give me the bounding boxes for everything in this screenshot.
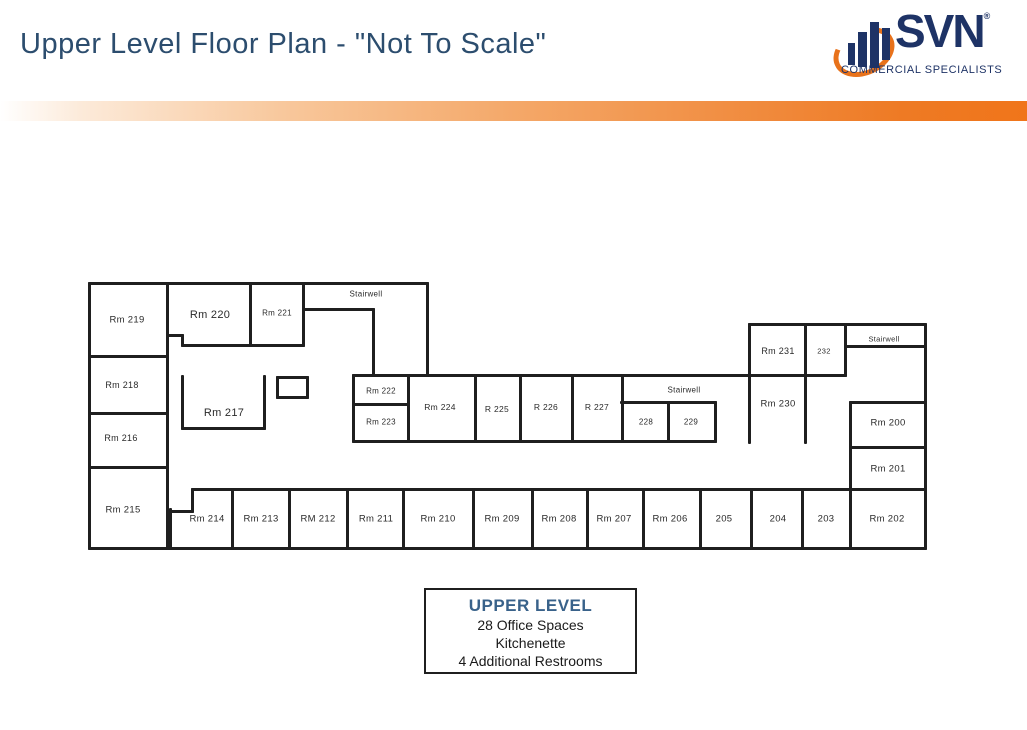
wall (402, 488, 405, 550)
room-label: Rm 231 (761, 346, 794, 356)
wall (531, 488, 534, 550)
room-label: RM 212 (300, 514, 335, 525)
wall (302, 308, 375, 311)
room-label: 205 (716, 514, 733, 525)
wall (181, 334, 184, 347)
room-label: 229 (684, 418, 698, 427)
slide: Upper Level Floor Plan - "Not To Scale" … (0, 0, 1027, 730)
wall (352, 403, 410, 406)
room-label: Rm 202 (869, 514, 904, 525)
wall (288, 488, 291, 550)
wall (474, 374, 477, 443)
room-label: Rm 207 (596, 514, 631, 525)
wall (181, 344, 305, 347)
wall (714, 401, 717, 443)
room-label: Rm 222 (366, 387, 396, 396)
wall (276, 376, 309, 379)
room-label: Rm 221 (262, 309, 292, 318)
room-label: Rm 219 (109, 315, 144, 326)
wall (169, 508, 172, 550)
room-label: 203 (818, 514, 835, 525)
wall (88, 282, 91, 550)
wall (352, 374, 355, 443)
room-label: Rm 214 (189, 514, 224, 525)
room-label: 204 (770, 514, 787, 525)
wall (191, 488, 927, 491)
room-label: Rm 210 (420, 514, 455, 525)
room-label: 228 (639, 418, 653, 427)
wall (191, 488, 194, 513)
wall (88, 412, 169, 415)
room-label: R 226 (534, 402, 558, 412)
wall (642, 488, 645, 550)
wall (306, 376, 309, 399)
wall (88, 466, 169, 469)
room-label: Rm 215 (105, 505, 140, 516)
wall (801, 488, 804, 550)
room-label: Stairwell (668, 386, 701, 395)
wall (748, 323, 751, 444)
wall (844, 323, 847, 377)
wall (472, 488, 475, 550)
wall (804, 323, 807, 444)
wall (407, 374, 410, 443)
room-label: Rm 230 (760, 399, 795, 410)
room-label: Rm 206 (652, 514, 687, 525)
room-label: Stairwell (868, 335, 899, 344)
wall (571, 374, 574, 443)
room-label: Rm 218 (105, 380, 138, 390)
wall (302, 282, 305, 347)
wall (748, 323, 927, 326)
room-label: Rm 200 (870, 418, 905, 429)
wall (263, 375, 266, 430)
wall (519, 374, 522, 443)
legend-line: 28 Office Spaces (426, 616, 635, 634)
wall (924, 323, 927, 550)
wall (667, 401, 670, 443)
wall (231, 488, 234, 550)
room-label: Rm 209 (484, 514, 519, 525)
wall (249, 282, 252, 347)
wall (276, 376, 279, 399)
wall (181, 427, 266, 430)
wall (699, 488, 702, 550)
legend-line: 4 Additional Restrooms (426, 652, 635, 670)
legend-line: Kitchenette (426, 634, 635, 652)
wall (621, 374, 624, 443)
room-label: Rm 220 (190, 309, 230, 321)
room-label: Rm 217 (204, 407, 244, 419)
room-label: Rm 224 (424, 402, 456, 412)
wall (181, 375, 184, 430)
room-label: Rm 201 (870, 464, 905, 475)
room-label: R 227 (585, 402, 609, 412)
wall (844, 345, 927, 348)
wall (88, 355, 169, 358)
room-label: Rm 216 (104, 433, 137, 443)
wall (276, 396, 309, 399)
wall (849, 401, 852, 550)
room-label: Rm 213 (243, 514, 278, 525)
wall (586, 488, 589, 550)
wall (352, 374, 750, 377)
wall (750, 488, 753, 550)
room-label: R 225 (485, 404, 509, 414)
wall (372, 308, 375, 377)
room-label: Rm 208 (541, 514, 576, 525)
wall (346, 488, 349, 550)
legend-box: UPPER LEVEL 28 Office Spaces Kitchenette… (424, 588, 637, 674)
wall (88, 282, 429, 285)
room-label: Rm 211 (359, 514, 393, 525)
room-label: Stairwell (350, 290, 383, 299)
room-label: Rm 223 (366, 418, 396, 427)
wall (426, 282, 429, 377)
legend-title: UPPER LEVEL (426, 596, 635, 616)
wall (849, 401, 927, 404)
room-label: 232 (817, 347, 830, 356)
wall (748, 374, 847, 377)
wall (849, 446, 927, 449)
